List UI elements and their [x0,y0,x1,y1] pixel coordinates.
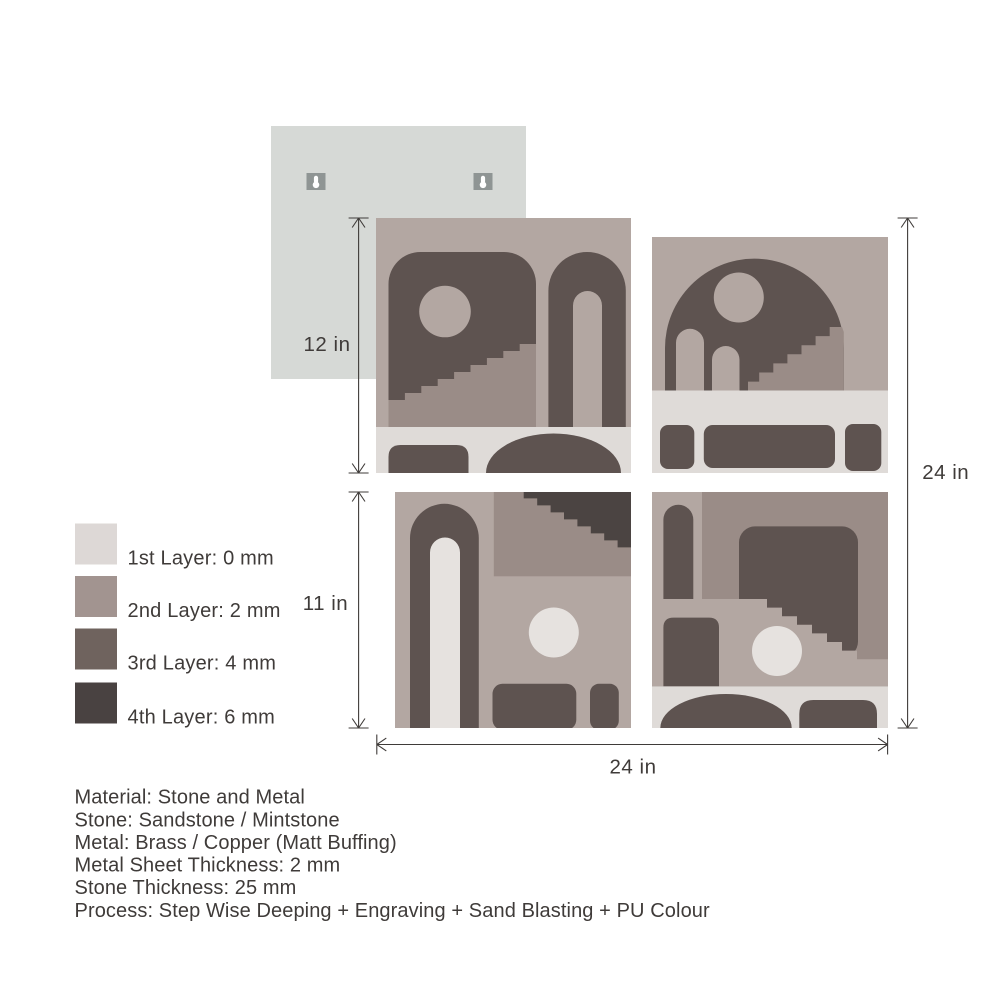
svg-text:Stone: Sandstone / Mintstone: Stone: Sandstone / Mintstone [75,810,340,832]
svg-text:24 in: 24 in [610,756,657,779]
svg-text:Stone Thickness: 25 mm: Stone Thickness: 25 mm [75,877,297,899]
svg-text:Process: Step Wise Deeping + E: Process: Step Wise Deeping + Engraving +… [75,900,711,922]
svg-text:3rd Layer: 4 mm: 3rd Layer: 4 mm [128,653,277,675]
svg-text:11 in: 11 in [303,592,348,615]
svg-text:4th Layer: 6 mm: 4th Layer: 6 mm [128,707,276,729]
svg-text:1st Layer: 0 mm: 1st Layer: 0 mm [128,548,274,570]
svg-text:Metal Sheet Thickness: 2 mm: Metal Sheet Thickness: 2 mm [75,855,341,877]
svg-text:2nd Layer: 2 mm: 2nd Layer: 2 mm [128,600,281,622]
svg-text:12 in: 12 in [304,333,351,356]
svg-text:Metal: Brass / Copper (Matt Bu: Metal: Brass / Copper (Matt Buffing) [75,832,397,854]
svg-text:Material: Stone and Metal: Material: Stone and Metal [75,787,305,809]
svg-text:24 in: 24 in [922,461,969,484]
